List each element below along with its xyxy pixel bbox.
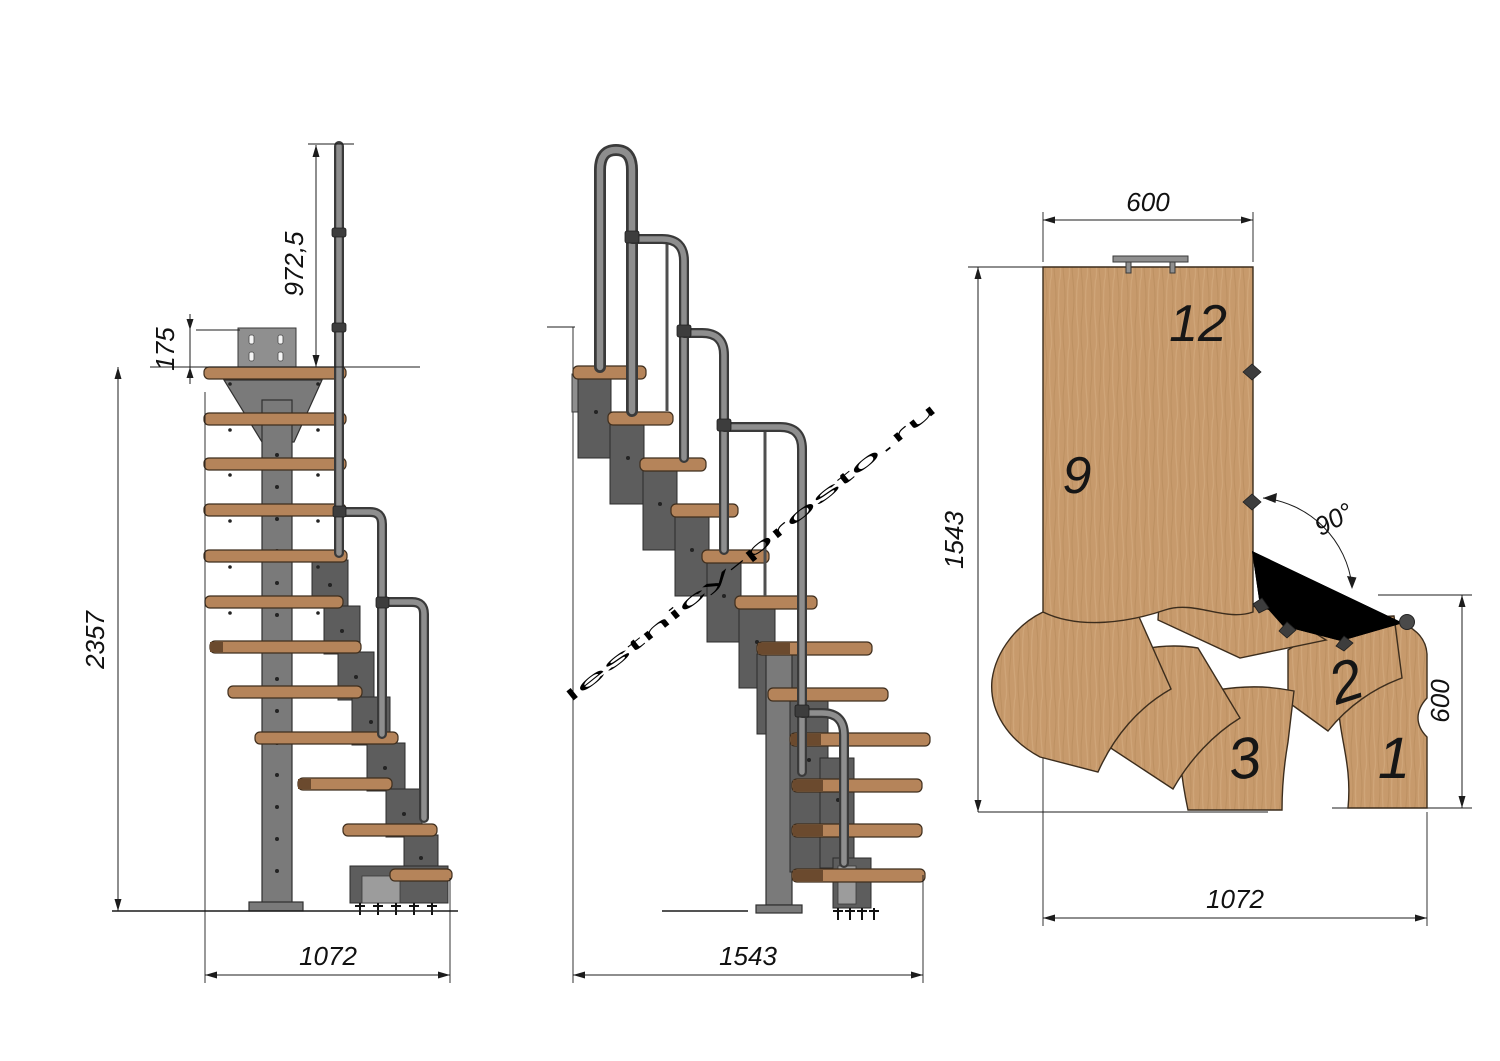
dim-side-footprint: 1072 (299, 941, 357, 971)
drawing-canvas: 972,5 175 2357 1072 (0, 0, 1500, 1061)
dim-plan-bottom-width: 1072 (1206, 884, 1264, 914)
rail-clamp (376, 597, 389, 608)
side-handrail (332, 146, 424, 818)
plan-view: 600 1543 600 1072 (939, 187, 1472, 926)
side-mounting-plate (238, 328, 296, 367)
rail-clamp (625, 231, 639, 243)
side-anchor-bolts (355, 903, 437, 915)
dim-front-footprint: 1543 (719, 941, 777, 971)
front-anchor-bolts (833, 908, 879, 920)
dim-plan-left-depth: 1543 (939, 511, 969, 569)
dim-rail-height: 972,5 (279, 231, 309, 297)
front-wall-line (547, 327, 575, 983)
rail-joint (332, 228, 346, 237)
dim-plan-top-width: 600 (1126, 187, 1170, 217)
dim-plan-right-depth: 600 (1425, 679, 1455, 723)
rail-clamp (333, 506, 346, 517)
dim-turn-angle: 90° (1309, 496, 1358, 541)
dim-plate-offset: 175 (150, 327, 180, 371)
rail-joint (332, 323, 346, 332)
tread-label-12: 12 (1169, 295, 1227, 353)
tread-label-9: 9 (1063, 447, 1092, 505)
dim-total-height: 2357 (80, 610, 110, 670)
plan-handrail (1243, 303, 1415, 651)
rail-clamp (717, 419, 731, 431)
rail-clamp (795, 705, 809, 717)
side-elevation-view: 972,5 175 2357 1072 (80, 144, 458, 983)
tread-label-1: 1 (1378, 726, 1410, 791)
staircase-drawing: 972,5 175 2357 1072 (0, 0, 1500, 1061)
rail-clamp (677, 325, 691, 337)
